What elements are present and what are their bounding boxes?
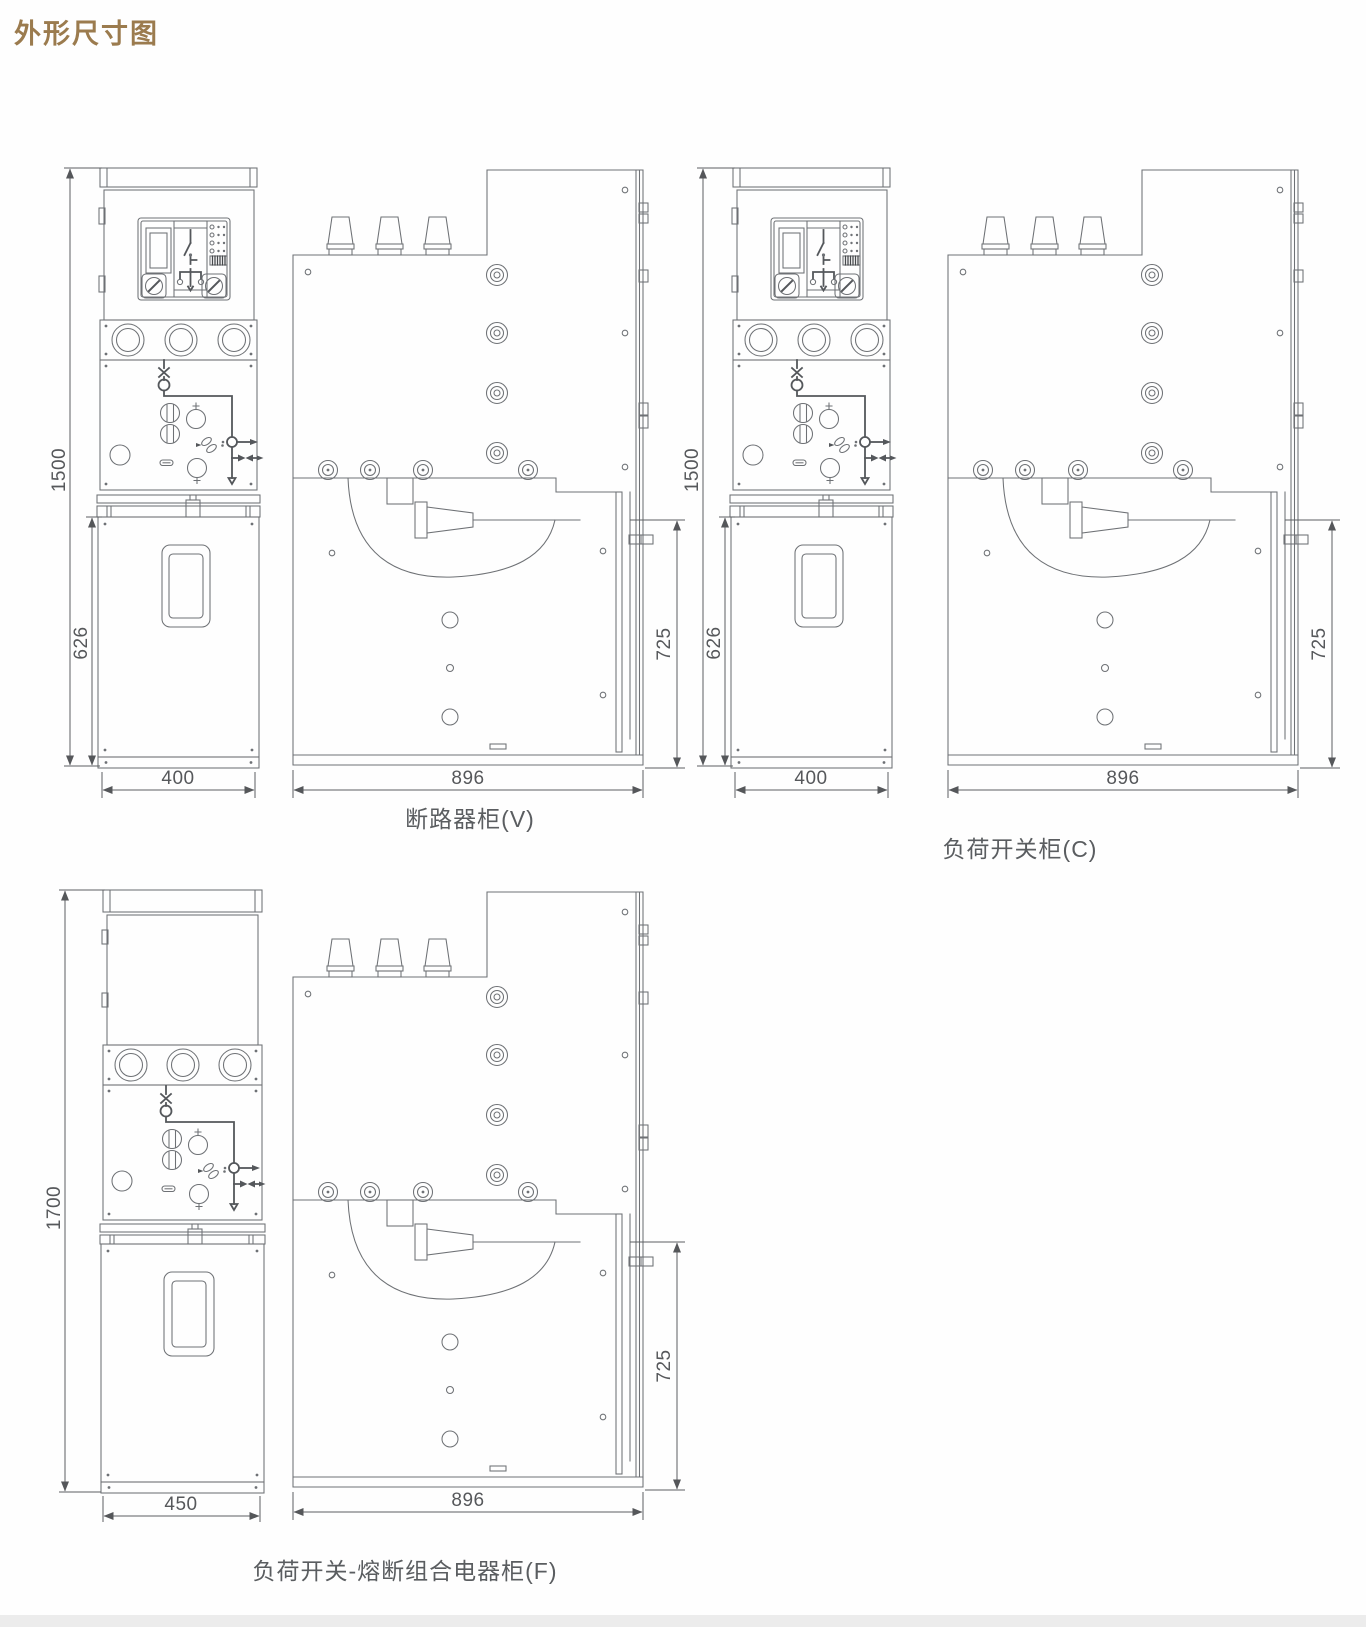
dim-front-width: 400 [794, 768, 827, 789]
figure-v-front-view: 1500 626 400 [50, 156, 285, 828]
page-title: 外形尺寸图 [14, 12, 159, 51]
dim-lower-depth: 725 [654, 627, 675, 660]
dim-depth: 896 [451, 1490, 484, 1511]
dim-lower-depth: 725 [1309, 627, 1330, 660]
dim-height-total: 1500 [49, 448, 70, 492]
dim-lower-height: 626 [71, 626, 92, 659]
caption-load-switch-cabinet: 负荷开关柜(C) [890, 830, 1150, 864]
page-edge-strip [0, 1615, 1366, 1627]
figure-c-front-view: 1500 626 400 [683, 156, 918, 828]
dim-depth: 896 [1106, 768, 1139, 789]
dim-lower-height: 626 [704, 626, 725, 659]
dim-lower-depth: 725 [654, 1349, 675, 1382]
dim-height-total: 1500 [682, 448, 703, 492]
caption-fuse-combination-cabinet: 负荷开关-熔断组合电器柜(F) [250, 1552, 560, 1586]
dim-depth: 896 [451, 768, 484, 789]
figure-f-front-view: 1700 450 [45, 878, 280, 1550]
figure-v-side-view: 896 725 [285, 156, 695, 828]
dim-front-width: 450 [164, 1494, 197, 1515]
figure-c-side-view: 896 725 [940, 156, 1350, 828]
dimension-drawing-page: 外形尺寸图 [0, 0, 1366, 1627]
dim-height-total: 1700 [44, 1186, 65, 1230]
caption-breaker-cabinet: 断路器柜(V) [340, 800, 600, 834]
dim-front-width: 400 [161, 768, 194, 789]
figure-f-side-view: 896 725 [285, 878, 695, 1550]
